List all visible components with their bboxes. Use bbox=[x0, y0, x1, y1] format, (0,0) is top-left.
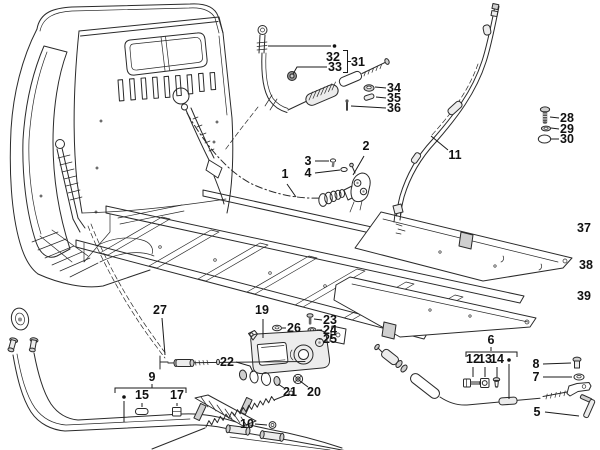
part-nut-33 bbox=[288, 72, 297, 81]
callout-1: 1 bbox=[282, 167, 289, 181]
part-oring-30 bbox=[538, 135, 550, 143]
callout-5: 5 bbox=[534, 405, 541, 419]
callout-17: 17 bbox=[170, 388, 184, 402]
callout-4: 4 bbox=[305, 166, 312, 180]
callout-7: 7 bbox=[533, 370, 540, 384]
part-clip-17 bbox=[173, 408, 182, 417]
leader-line-1 bbox=[287, 184, 296, 197]
cable-11 bbox=[393, 4, 499, 222]
callout-38: 38 bbox=[579, 258, 593, 272]
part-washer-4 bbox=[341, 168, 347, 172]
reference-dot bbox=[333, 44, 337, 48]
leader-line-23 bbox=[314, 319, 322, 320]
leader-line-10 bbox=[255, 424, 267, 425]
parts-diagram: 1234567891011121314151719202122232425262… bbox=[0, 0, 600, 450]
part-sleeve-35 bbox=[364, 93, 375, 100]
leader-line-8 bbox=[543, 363, 571, 364]
callout-14: 14 bbox=[490, 352, 504, 366]
handbrake-lever-assembly bbox=[239, 330, 330, 386]
part-bolt-14 bbox=[493, 378, 499, 389]
leader-line-34 bbox=[375, 87, 386, 88]
part-ring-34 bbox=[364, 85, 374, 91]
callout-21: 21 bbox=[283, 385, 297, 399]
part-ring-26 bbox=[273, 325, 282, 331]
strut-with-spring bbox=[56, 140, 86, 233]
part-pin-5 bbox=[580, 394, 595, 418]
callout-10: 10 bbox=[240, 417, 254, 431]
leader-line-36 bbox=[351, 106, 386, 108]
callout-36: 36 bbox=[387, 101, 401, 115]
part-bolt-28 bbox=[540, 107, 549, 124]
reference-dot bbox=[122, 395, 126, 399]
part-nut-13 bbox=[481, 379, 490, 388]
callout-19: 19 bbox=[255, 303, 269, 317]
reference-dot bbox=[507, 358, 511, 362]
cab-vent-slots bbox=[118, 72, 216, 100]
callout-6: 6 bbox=[488, 333, 495, 347]
cable-coupling-ujoint bbox=[319, 159, 370, 212]
part-bolt-8 bbox=[573, 357, 581, 368]
part-pin-36 bbox=[345, 99, 348, 110]
cable-end-fitting bbox=[7, 337, 19, 353]
callout-8: 8 bbox=[533, 357, 540, 371]
callout-9: 9 bbox=[149, 370, 156, 384]
callout-20: 20 bbox=[307, 385, 321, 399]
side-platform-upper bbox=[355, 212, 572, 281]
leader-line-5 bbox=[545, 412, 579, 416]
callout-15: 15 bbox=[135, 388, 149, 402]
callout-33: 33 bbox=[328, 60, 342, 74]
callout-30: 30 bbox=[560, 132, 574, 146]
callout-25: 25 bbox=[323, 332, 337, 346]
part-screw-23 bbox=[307, 314, 313, 325]
diagram-canvas: 1234567891011121314151719202122232425262… bbox=[0, 0, 600, 450]
callout-37: 37 bbox=[577, 221, 591, 235]
leader-line-35 bbox=[376, 97, 386, 98]
part-bolt-3 bbox=[330, 159, 335, 167]
part-washer-7 bbox=[574, 374, 584, 380]
cab-rear-window bbox=[125, 33, 207, 75]
side-platform-lower bbox=[330, 277, 536, 344]
gearshift-cable-upper bbox=[225, 26, 390, 151]
callout-39: 39 bbox=[577, 289, 591, 303]
part-sleeve-15 bbox=[136, 409, 149, 415]
leader-line-33 bbox=[293, 67, 327, 74]
part-bolt-12 bbox=[464, 379, 481, 387]
cable-adjuster bbox=[260, 430, 285, 441]
gear-lever-mechanism bbox=[173, 88, 224, 204]
callout-27: 27 bbox=[153, 303, 167, 317]
cab-floor-detail bbox=[32, 120, 218, 277]
callout-2: 2 bbox=[363, 139, 370, 153]
callout-26: 26 bbox=[287, 321, 301, 335]
leader-line-29 bbox=[551, 128, 559, 129]
callout-31: 31 bbox=[351, 55, 365, 69]
part-nut-10 bbox=[269, 422, 276, 429]
leader-line-28 bbox=[550, 117, 559, 118]
part-washer-29 bbox=[541, 126, 550, 131]
callout-22: 22 bbox=[220, 355, 234, 369]
group-bracket-31 bbox=[343, 51, 351, 73]
cable-end-fitting bbox=[28, 337, 38, 352]
callout-11: 11 bbox=[448, 148, 461, 162]
leader-line-2 bbox=[353, 156, 364, 175]
leader-line-4 bbox=[315, 170, 340, 173]
